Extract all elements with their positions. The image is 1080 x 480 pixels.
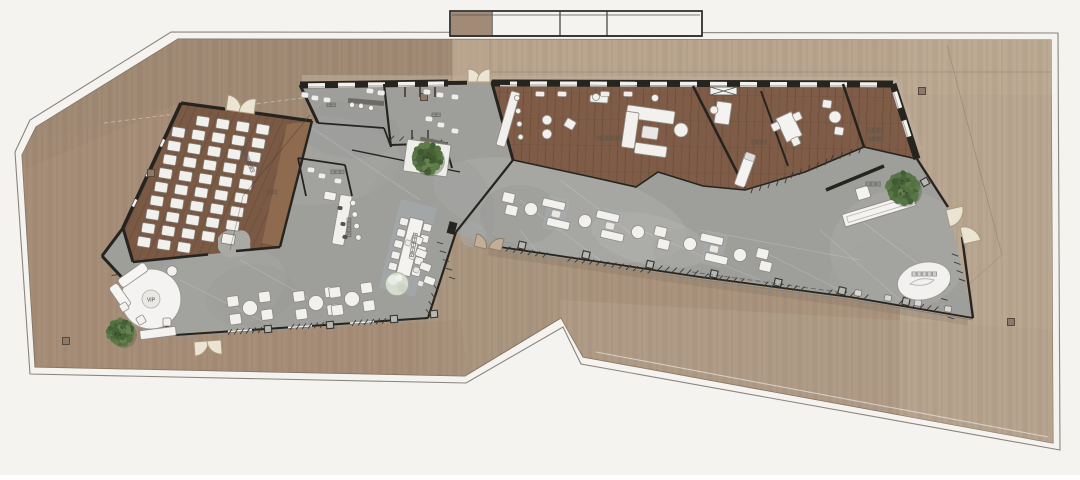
svg-text:VIP: VIP (147, 298, 156, 304)
